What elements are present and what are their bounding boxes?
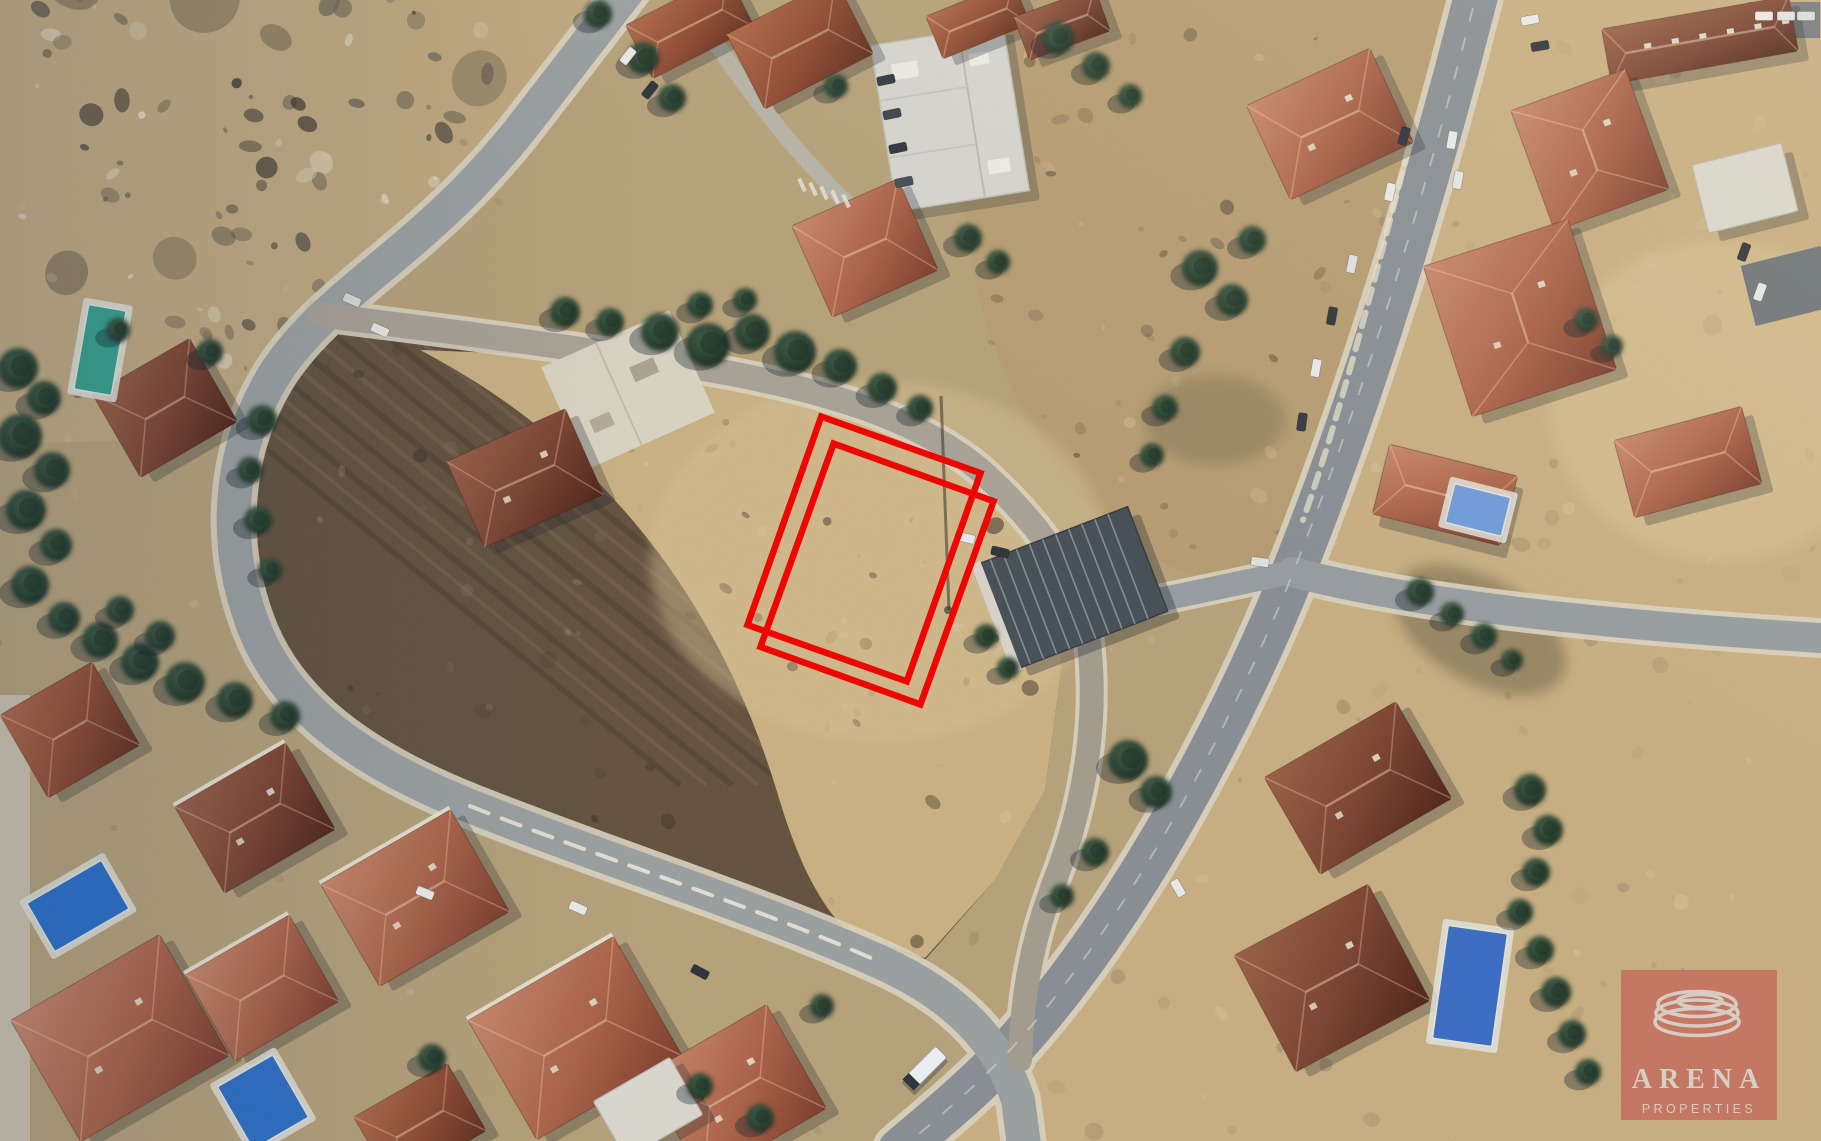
arena-subtitle-text: PROPERTIES [1642,1102,1756,1116]
arena-brand-text: ARENA [1632,1064,1767,1095]
film-grain [0,0,1821,1141]
arena-watermark: ARENA PROPERTIES [1621,970,1777,1120]
listing-photo-stage: ARENA PROPERTIES [0,0,1821,1141]
satellite-photo: ARENA PROPERTIES [0,0,1821,1141]
photo-grade [0,0,1821,1141]
